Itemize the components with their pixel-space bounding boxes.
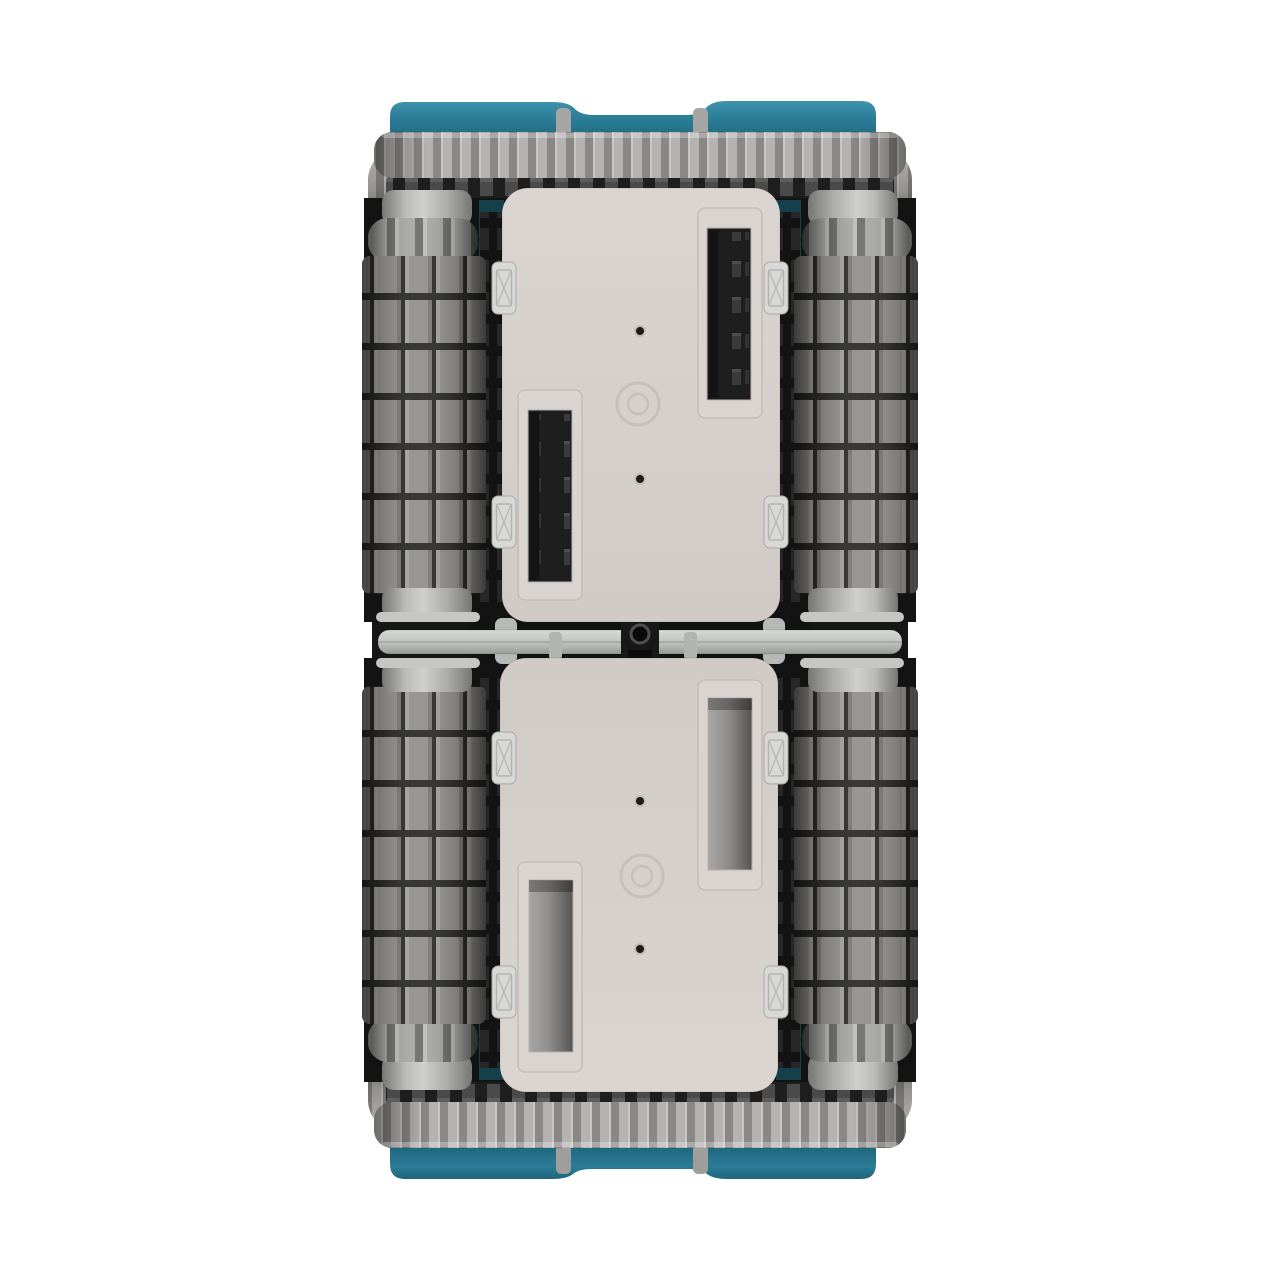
roller-front-right xyxy=(774,190,918,622)
front-panel-intake-right xyxy=(707,228,751,400)
rear-panel-intake-left xyxy=(529,880,573,1052)
rear-panel-intake-right xyxy=(708,698,752,870)
front-panel-intake-left xyxy=(528,410,572,582)
roller-rear-right xyxy=(774,658,918,1090)
hinge-pivot-hole xyxy=(631,625,649,643)
hinge-peg-left xyxy=(549,632,562,660)
hinge-peg-right xyxy=(684,632,697,660)
pool-robot-underside-render xyxy=(0,0,1280,1280)
roller-rear-left xyxy=(362,658,506,1090)
roller-front-left xyxy=(362,190,506,622)
intake-comb xyxy=(539,414,570,578)
render-stage xyxy=(0,0,1280,1280)
intake-comb xyxy=(718,232,749,396)
